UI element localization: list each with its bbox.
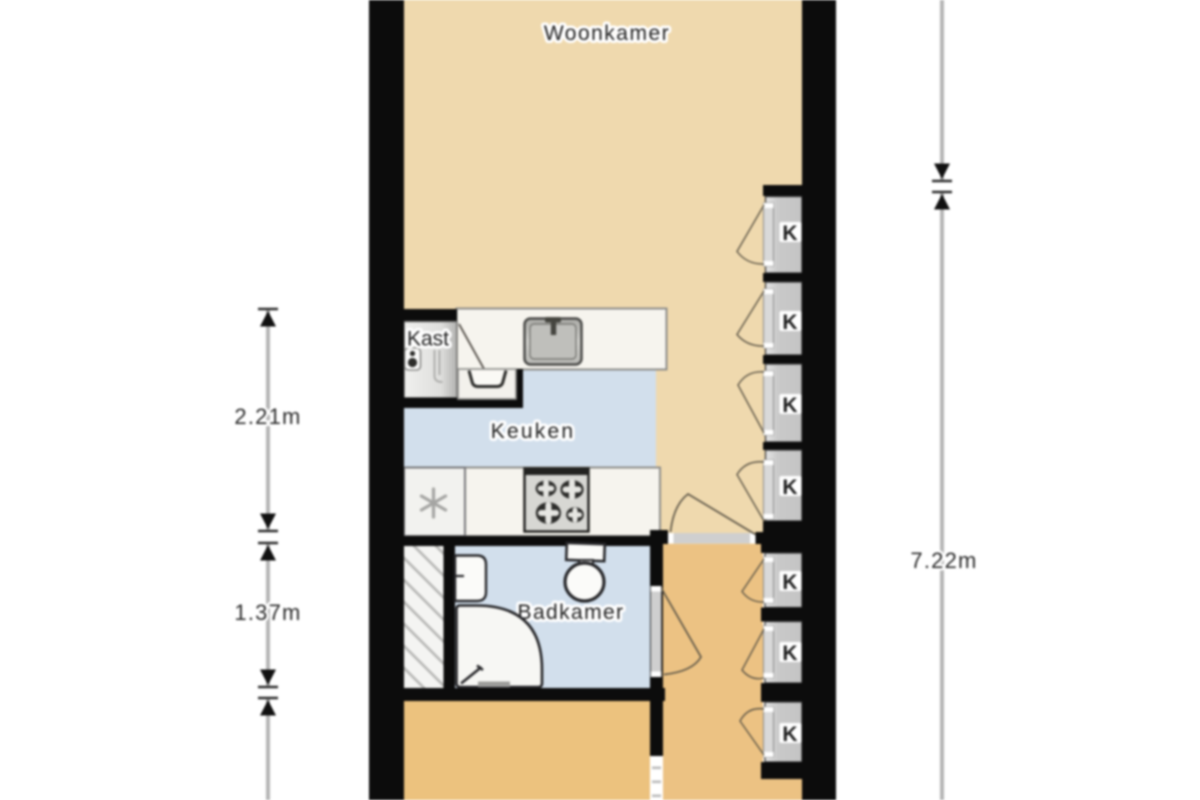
svg-text:K: K [782,642,797,665]
svg-text:K: K [782,222,797,245]
svg-text:Badkamer: Badkamer [518,601,625,624]
svg-text:K: K [782,394,797,417]
svg-text:K: K [782,311,797,334]
svg-text:1.37m: 1.37m [234,600,301,625]
svg-text:Keuken: Keuken [491,420,575,443]
svg-text:2.21m: 2.21m [234,404,301,429]
svg-text:K: K [782,723,797,746]
svg-text:K: K [782,571,797,594]
svg-text:K: K [782,476,797,499]
svg-text:Kast: Kast [407,328,449,351]
svg-text:Woonkamer: Woonkamer [544,22,670,45]
svg-text:7.22m: 7.22m [910,548,977,573]
